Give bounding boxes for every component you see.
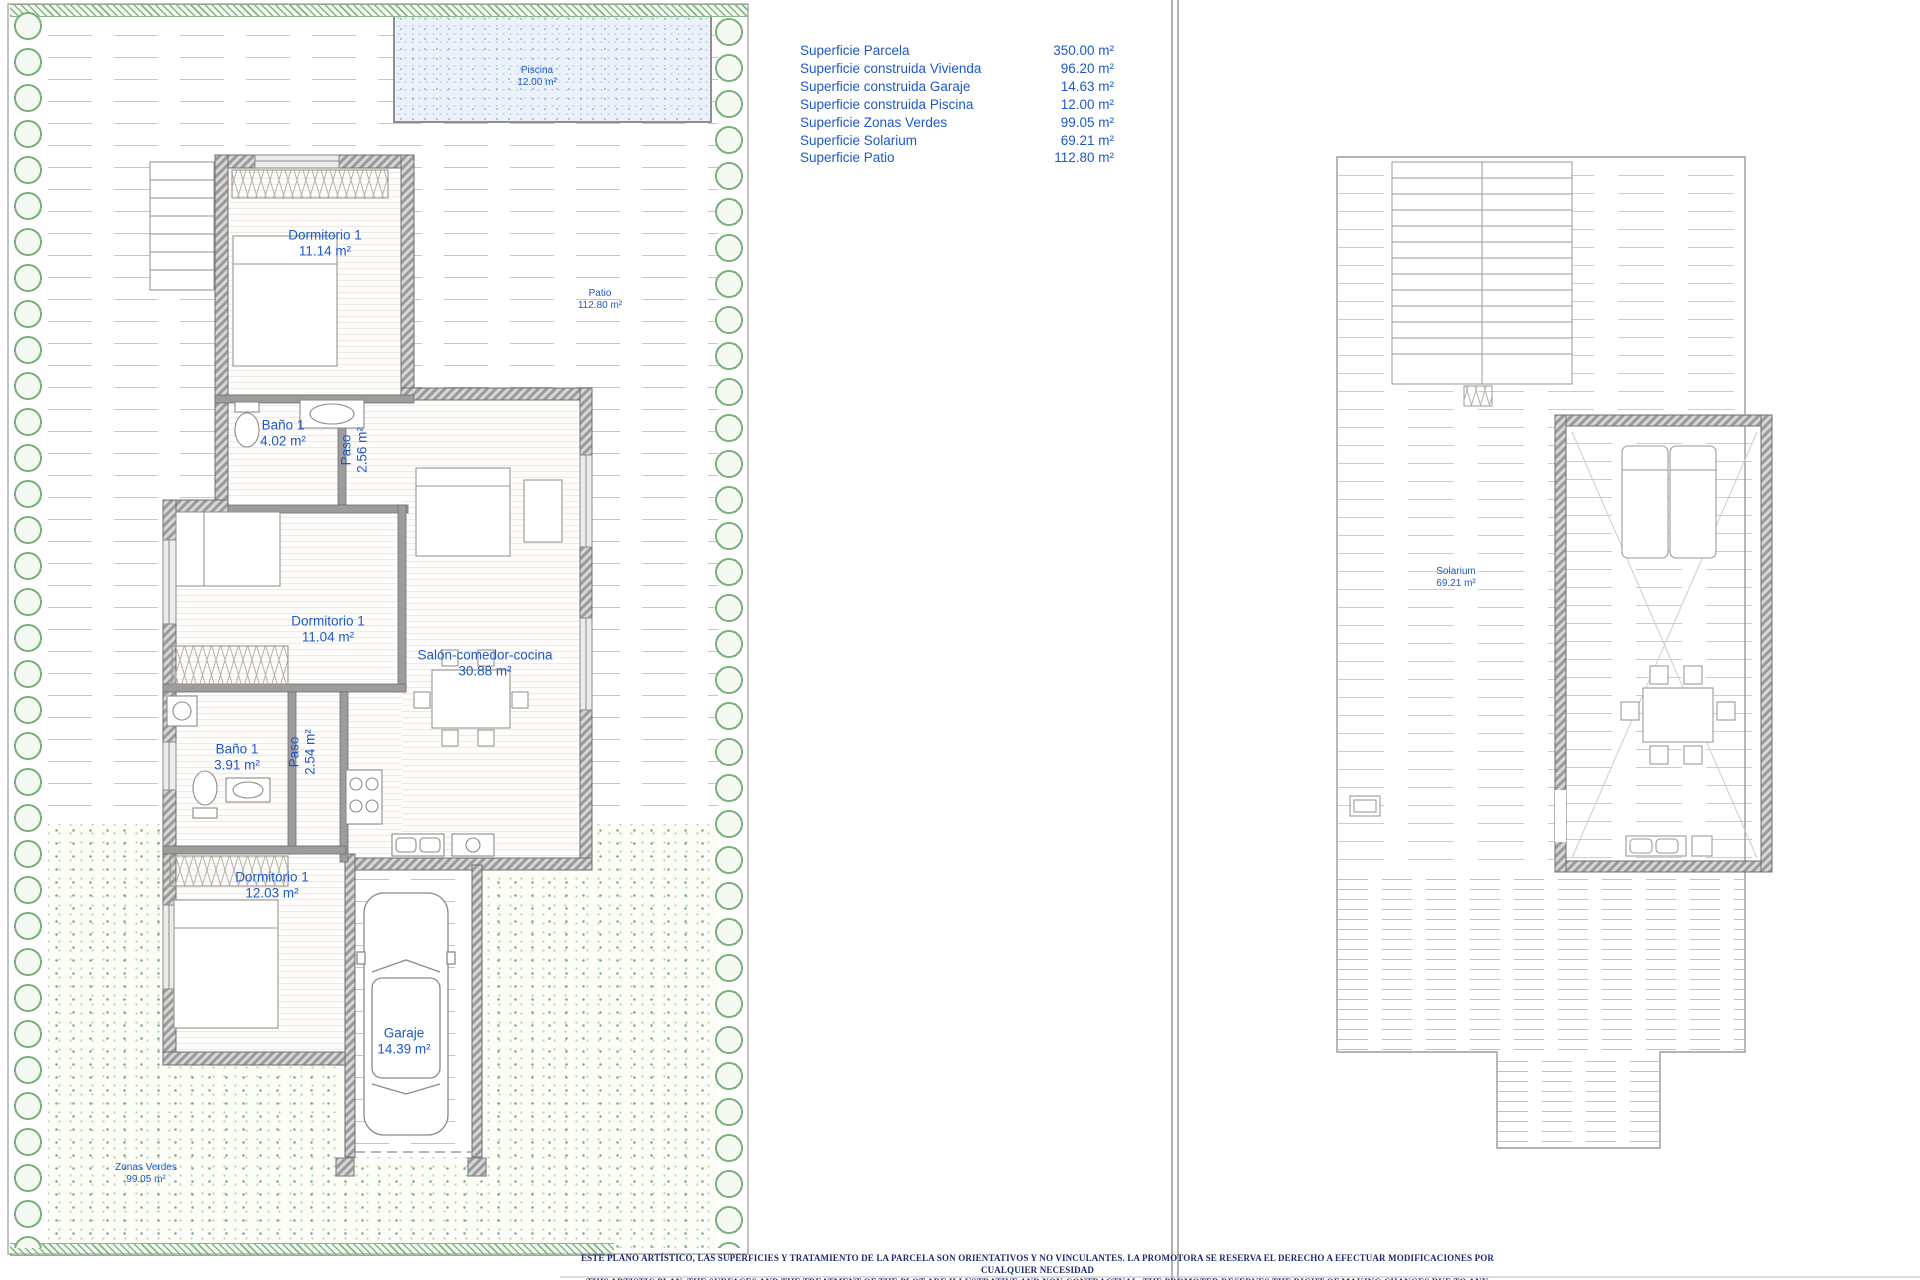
- panel-divider: [1172, 0, 1178, 1280]
- furniture: [170, 170, 562, 1028]
- surface-value: 14.63 m²: [1061, 78, 1114, 96]
- surface-label: Superficie Patio: [800, 149, 895, 167]
- surface-value: 69.21 m²: [1061, 132, 1114, 150]
- room-name: Paso: [339, 427, 355, 473]
- room-name: Baño 1: [260, 418, 306, 434]
- room-name: Baño 1: [214, 742, 260, 758]
- surface-row: Superficie Parcela350.00 m²: [800, 42, 1114, 60]
- disclaimer-line-es: ESTE PLANO ARTÍSTICO, LAS SUPERFICIES Y …: [565, 1252, 1510, 1276]
- solarium-door-gap: [1555, 790, 1566, 842]
- solarium-furniture: [1350, 446, 1735, 856]
- room-label-piscina: Piscina 12.00 m²: [517, 65, 556, 89]
- room-label-dormitorio-mid: Dormitorio 1 11.04 m²: [291, 614, 365, 647]
- sink-icon: [300, 400, 364, 428]
- room-label-salon: Salón-comedor-cocina 30.88 m²: [417, 648, 552, 681]
- surface-row: Superficie Zonas Verdes99.05 m²: [800, 114, 1114, 132]
- surface-label: Superficie construida Vivienda: [800, 60, 981, 78]
- coffee-table-icon: [524, 480, 562, 542]
- surface-label: Superficie Solarium: [800, 132, 917, 150]
- room-area: 11.14 m²: [288, 244, 362, 260]
- kitchen-sink-icon: [392, 834, 444, 856]
- surface-value: 96.20 m²: [1061, 60, 1114, 78]
- closet-icon: [172, 646, 288, 684]
- room-area: 3.91 m²: [214, 758, 260, 774]
- vent-icon: [1350, 796, 1380, 816]
- room-name: Solarium: [1436, 566, 1475, 578]
- surface-value: 99.05 m²: [1061, 114, 1114, 132]
- sun-lounger-icon: [1670, 446, 1716, 558]
- surface-label: Superficie Parcela: [800, 42, 910, 60]
- room-label-zonas-verdes: Zonas Verdes 99.05 m²: [115, 1162, 177, 1186]
- room-area: 12.00 m²: [517, 77, 556, 89]
- room-area: 2.54 m²: [303, 729, 319, 775]
- surface-value: 350.00 m²: [1053, 42, 1114, 60]
- washing-machine-icon: [167, 696, 197, 726]
- toilet-icon: [235, 402, 259, 447]
- room-name: Patio: [578, 288, 622, 300]
- room-label-paso-top: Paso 2.56 m²: [339, 427, 372, 473]
- surface-label: Superficie construida Garaje: [800, 78, 970, 96]
- disclaimer-line-en: THIS ARTISTIC PLAN, THE SURFACES AND THE…: [565, 1276, 1510, 1280]
- room-name: Dormitorio 1: [291, 614, 365, 630]
- room-name: Garaje: [377, 1026, 430, 1042]
- room-name: Paso: [287, 729, 303, 775]
- toilet-icon: [193, 771, 217, 818]
- sun-lounger-icon: [1622, 446, 1668, 558]
- room-area: 12.03 m²: [235, 886, 309, 902]
- room-label-dormitorio-low: Dormitorio 1 12.03 m²: [235, 870, 309, 903]
- surface-row: Superficie construida Piscina12.00 m²: [800, 96, 1114, 114]
- room-area: 112.80 m²: [578, 300, 622, 312]
- surface-row: Superficie Patio112.80 m²: [800, 149, 1114, 167]
- surface-value: 112.80 m²: [1054, 149, 1114, 167]
- room-label-bano-top: Baño 1 4.02 m²: [260, 418, 306, 451]
- roof-stairs-icon: [1392, 162, 1572, 406]
- surface-row: Superficie Solarium69.21 m²: [800, 132, 1114, 150]
- stove-icon: [346, 770, 382, 824]
- bed-icon: [174, 900, 278, 1028]
- room-name: Dormitorio 1: [288, 228, 362, 244]
- dishwasher-icon: [452, 834, 494, 856]
- sofa-icon: [416, 468, 510, 556]
- disclaimer: ESTE PLANO ARTÍSTICO, LAS SUPERFICIES Y …: [565, 1252, 1510, 1280]
- dining-table-icon: [1621, 666, 1735, 764]
- floor-plan-canvas: Superficie Parcela350.00 m² Superficie c…: [0, 0, 1920, 1280]
- car-icon: [357, 893, 455, 1135]
- room-name: Piscina: [517, 65, 556, 77]
- room-label-patio: Patio 112.80 m²: [578, 288, 622, 312]
- surface-value: 12.00 m²: [1061, 96, 1114, 114]
- surface-row: Superficie construida Vivienda96.20 m²: [800, 60, 1114, 78]
- sink-icon: [1626, 836, 1712, 856]
- entry-stairs-icon: [150, 162, 214, 290]
- surface-label: Superficie construida Piscina: [800, 96, 973, 114]
- room-area: 30.88 m²: [417, 664, 552, 680]
- room-label-bano-low: Baño 1 3.91 m²: [214, 742, 260, 775]
- room-label-solarium: Solarium 69.21 m²: [1436, 566, 1475, 590]
- room-label-paso-low: Paso 2.54 m²: [287, 729, 320, 775]
- room-area: 99.05 m²: [115, 1174, 177, 1186]
- room-area: 2.56 m²: [355, 427, 371, 473]
- room-name: Zonas Verdes: [115, 1162, 177, 1174]
- surface-row: Superficie construida Garaje14.63 m²: [800, 78, 1114, 96]
- closet-icon: [232, 170, 388, 198]
- room-area: 4.02 m²: [260, 434, 306, 450]
- sink-icon: [226, 778, 270, 802]
- room-area: 11.04 m²: [291, 630, 365, 646]
- garage-gate: [336, 1152, 486, 1176]
- room-area: 69.21 m²: [1436, 578, 1475, 590]
- bed-icon: [176, 512, 280, 586]
- room-area: 14.39 m²: [377, 1042, 430, 1058]
- plan-drawing: [0, 0, 1920, 1280]
- room-name: Dormitorio 1: [235, 870, 309, 886]
- room-label-dormitorio-top: Dormitorio 1 11.14 m²: [288, 228, 362, 261]
- surface-table: Superficie Parcela350.00 m² Superficie c…: [800, 42, 1114, 167]
- surface-label: Superficie Zonas Verdes: [800, 114, 947, 132]
- room-label-garaje: Garaje 14.39 m²: [377, 1026, 430, 1059]
- room-name: Salón-comedor-cocina: [417, 648, 552, 664]
